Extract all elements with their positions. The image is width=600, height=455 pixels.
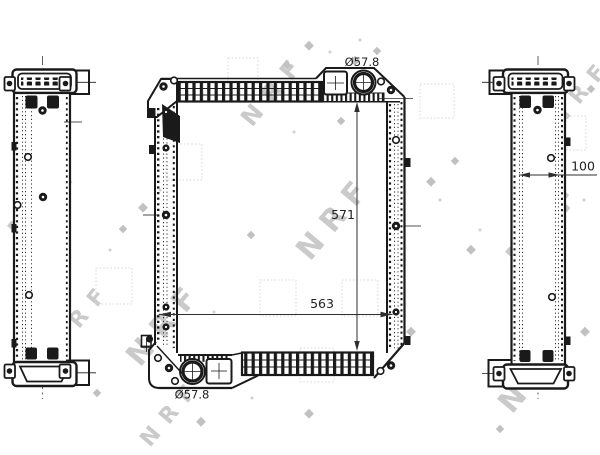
side-member-body	[512, 93, 571, 365]
bottom-port-diameter-label: Ø57.8	[175, 388, 210, 402]
bottom-right-corner-bracket	[374, 343, 405, 378]
depth-label: 100	[571, 159, 595, 174]
corner-hole	[378, 78, 385, 85]
drawing-canvas: NRF NRF NRF NRF NRF NRF NRF NRF NRF	[0, 0, 600, 455]
top-tank-side	[494, 70, 575, 94]
top-tank-grid	[178, 82, 322, 102]
core-width-label: 563	[310, 296, 334, 311]
left-side-view	[5, 56, 97, 399]
top-tank-side	[5, 70, 77, 94]
front-view: 571 563 Ø57.8 Ø57.8	[140, 55, 421, 402]
top-port-diameter-label: Ø57.8	[345, 55, 380, 69]
radiator-technical-drawing: NRF NRF NRF NRF NRF NRF NRF NRF NRF	[0, 0, 600, 455]
corner-bolt	[387, 86, 395, 94]
bottom-tank-side	[494, 365, 575, 389]
bottom-tank	[159, 353, 373, 389]
core-height-label: 571	[331, 207, 355, 222]
bottom-tank-grid	[242, 353, 373, 376]
bottom-tank-side	[5, 362, 77, 386]
